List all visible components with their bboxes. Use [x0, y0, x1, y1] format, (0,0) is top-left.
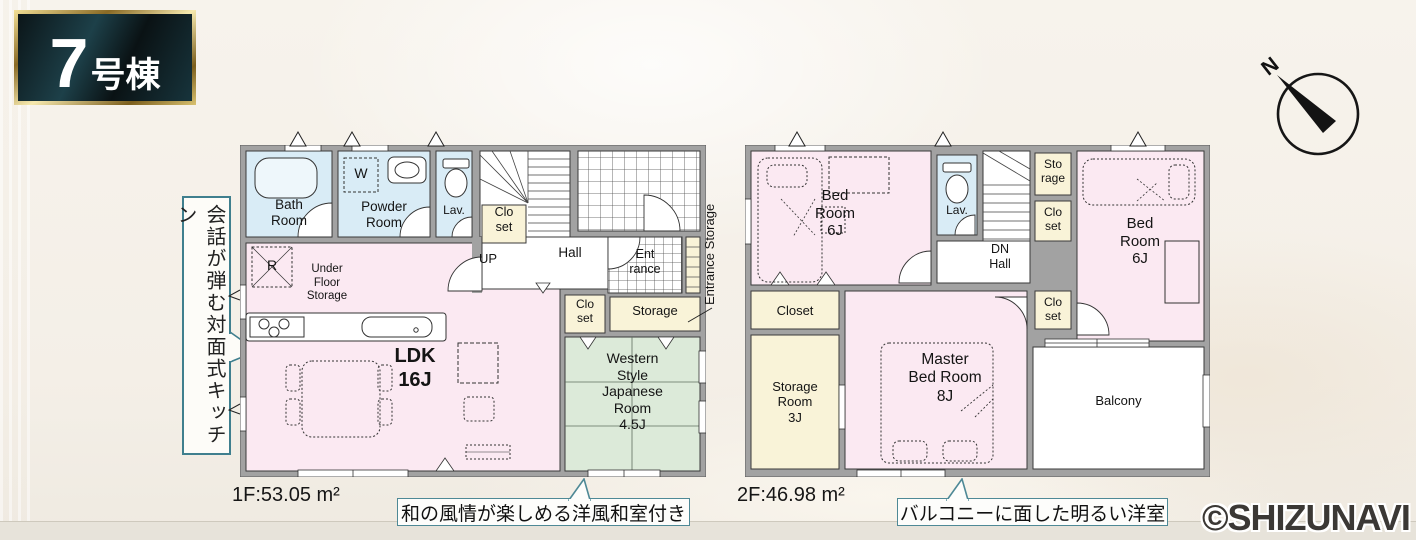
- room-label-bedroom-right: Bed Room 6J: [1090, 215, 1190, 268]
- room-label-closet-left: Closet: [751, 303, 839, 318]
- room-label-closet-mid: Clo set: [565, 297, 605, 325]
- kitchen-callout: 会話が弾む対面式キッチン: [182, 196, 231, 455]
- room-label-entrance: Ent rance: [608, 247, 682, 277]
- floor2-caption-pointer: [946, 478, 980, 501]
- under-floor-storage-label: Under Floor Storage: [282, 263, 372, 304]
- room-label-japanese: Western Style Japanese Room 4.5J: [565, 350, 700, 433]
- room-label-balcony: Balcony: [1033, 393, 1204, 408]
- floor1-caption: 和の風情が楽しめる洋風和室付き: [397, 498, 690, 526]
- room-label-master: Master Bed Room 8J: [865, 351, 1025, 406]
- floor2-caption: バルコニーに面した明るい洋室: [897, 498, 1168, 526]
- compass-north-label: N: [1257, 53, 1284, 81]
- floor1-caption-pointer: [568, 478, 602, 501]
- room-label-lav-2f: Lav.: [935, 203, 979, 217]
- room-label-dn-hall: DN Hall: [970, 242, 1030, 272]
- floor2-area-label: 2F:46.98 m²: [737, 484, 845, 507]
- copyright-watermark: ©SHIZUNAVI: [1202, 497, 1410, 539]
- floor1-caption-text: 和の風情が楽しめる洋風和室付き: [401, 499, 686, 526]
- stairs-up-label: UP: [458, 251, 518, 266]
- building-suffix: 号棟: [90, 58, 160, 95]
- entrance-storage-area: [686, 237, 700, 293]
- room-label-ldk: LDK 16J: [375, 345, 455, 392]
- room-label-closet-top: Clo set: [1035, 205, 1071, 233]
- compass-icon: [1260, 62, 1372, 170]
- porch-tiles: [578, 151, 700, 231]
- washer-mark: W: [344, 165, 378, 182]
- room-label-hall: Hall: [540, 245, 600, 261]
- floorplan-1f: Bath Room Powder Room Lav. W Clo set UP …: [240, 145, 706, 477]
- floorplan-page: 7 号棟 会話が弾む対面式キッチン: [0, 0, 1416, 540]
- room-label-closet-mid-2f: Clo set: [1035, 295, 1071, 323]
- building-badge-panel: 7 号棟: [18, 14, 192, 101]
- building-badge: 7 号棟: [14, 10, 196, 105]
- floorplan-2f: Bed Room 6J Lav. DN Hall Sto rage Clo se…: [745, 145, 1210, 477]
- room-label-storage-room: Storage Room 3J: [751, 379, 839, 425]
- room-label-storage-1f: Storage: [610, 303, 700, 318]
- room-label-storage-top: Sto rage: [1035, 157, 1071, 185]
- floor1-area-label: 1F:53.05 m²: [232, 484, 340, 507]
- building-number: 7: [50, 31, 89, 95]
- entrance-storage-label: Entrance Storage: [702, 186, 724, 322]
- room-label-bedroom-left: Bed Room 6J: [780, 187, 890, 240]
- floor2-caption-text: バルコニーに面した明るい洋室: [900, 499, 1166, 526]
- room-label-closet-stairs: Clo set: [482, 205, 526, 235]
- room-label-lav-1f: Lav.: [436, 203, 472, 217]
- room-label-bath: Bath Room: [246, 197, 332, 229]
- room-label-powder: Powder Room: [338, 199, 430, 231]
